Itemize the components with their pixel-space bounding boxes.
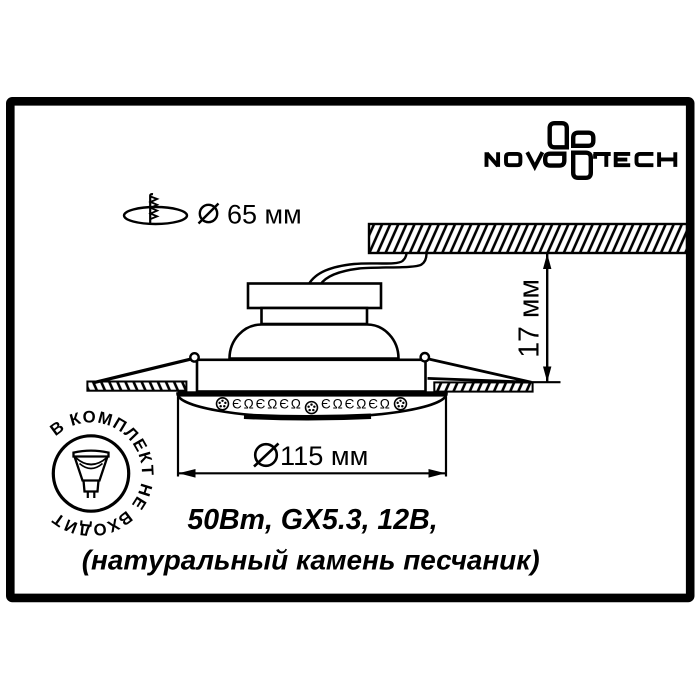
svg-text:ЄΩЄΩЄΩ: ЄΩЄΩЄΩ (232, 397, 303, 412)
svg-text:(наmуральный камень песчаник): (наmуральный камень песчаник) (82, 544, 540, 575)
svg-text:17 мм: 17 мм (514, 279, 546, 358)
svg-text:115 мм: 115 мм (280, 440, 368, 471)
svg-text:50Вm, GX5.3, 12В,: 50Вm, GX5.3, 12В, (187, 504, 437, 536)
svg-text:ЄΩЄΩЄΩ: ЄΩЄΩЄΩ (321, 397, 392, 412)
svg-text:65 мм: 65 мм (227, 200, 302, 230)
